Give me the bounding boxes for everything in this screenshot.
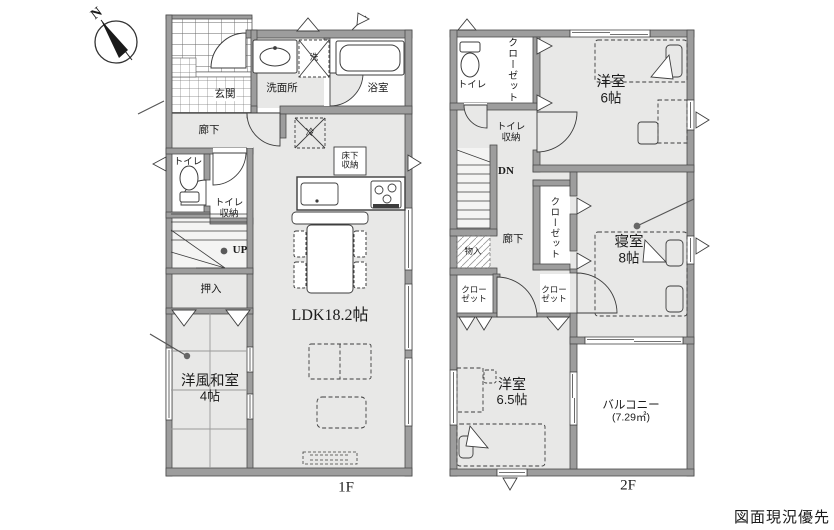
room-label-washitsu: 洋風和室 4帖 [181,374,239,405]
stairs-down-label: DN [498,165,514,177]
room-label-toilet-storage-1f: トイレ 収納 [215,198,244,219]
room-label-toilet-2f: トイレ [458,81,487,92]
room-label-toilet-storage-2f: トイレ 収納 [497,122,526,143]
stairs-up-label: UP [233,244,248,256]
room-label-ldk: LDK18.2帖 [292,307,369,325]
room-label-rouka-1f: 廊下 [199,125,220,137]
washer-label: 洗 [310,53,319,63]
drawing-priority-note: 図面現況優先 [734,506,830,527]
toilet-icon-1f [180,166,199,202]
room-label-closet-top: クローゼット [505,37,516,103]
room-label-genkan: 玄関 [214,89,237,101]
room-label-closet-mid: クローゼット [548,197,559,260]
room-label-yoshitsu6: 洋室 6帖 [597,74,626,105]
floor1-label: 1F [338,480,354,497]
stove-icon [371,181,401,208]
floor2-label: 2F [620,478,636,495]
room-label-oshiire: 押入 [201,284,222,296]
floor-plan-page: N 玄関 廊下 トイレ トイレ 収納 UP 押入 洋風和室 4帖 洗面所 浴室 … [0,0,834,530]
room-label-mono-ire: 物入 [464,247,481,257]
room-label-senmenjo: 洗面所 [266,83,298,95]
room-label-closet-bm: クロー ゼット [541,286,567,305]
compass-icon [95,20,137,63]
fridge-label: 冷 [306,128,315,138]
floor2-plan [450,19,709,490]
room-label-rouka-2f: 廊下 [503,234,524,246]
room-label-shinshitsu: 寝室 8帖 [615,234,644,265]
sink-icon [253,40,297,73]
toilet-icon-2f [460,42,480,77]
bathtub-icon [336,41,404,75]
room-label-balcony: バルコニー (7.29㎡) [602,400,659,425]
underfloor-storage-label: 床下 収納 [341,152,358,171]
floor-plan-drawing [0,0,834,530]
room-label-closet-bl: クロー ゼット [461,286,487,305]
room-label-yoshitsu65: 洋室 6.5帖 [496,377,527,407]
porch-tick-line [138,101,164,114]
room-label-bathroom: 浴室 [368,83,389,95]
room-label-toilet-1f: トイレ [174,158,203,169]
